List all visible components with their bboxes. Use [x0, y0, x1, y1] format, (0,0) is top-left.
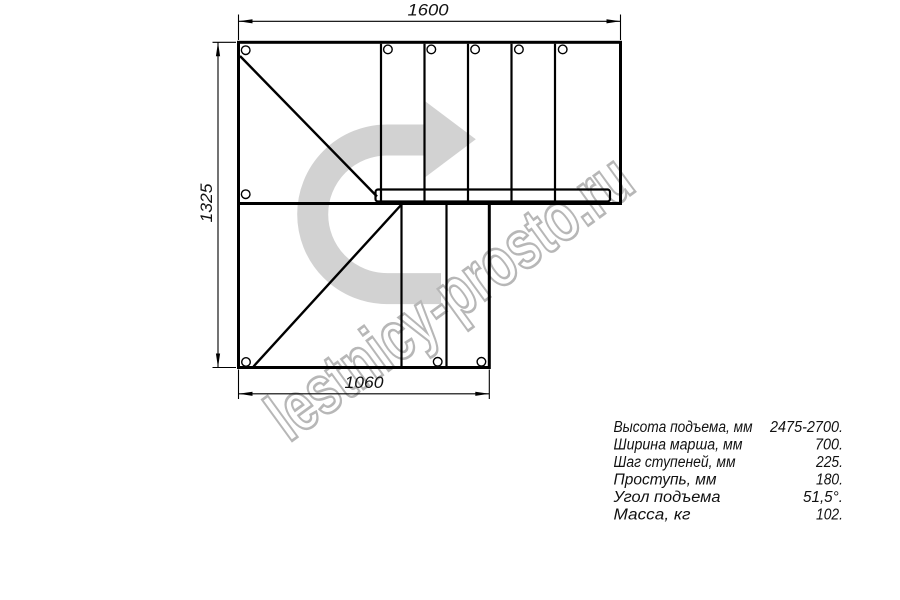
svg-text:Шаг ступеней, мм: Шаг ступеней, мм	[614, 454, 736, 471]
svg-text:Проступь, мм: Проступь, мм	[614, 472, 717, 489]
svg-text:1060: 1060	[345, 373, 385, 392]
svg-text:51,5°.: 51,5°.	[803, 489, 843, 506]
svg-text:1325: 1325	[197, 183, 216, 223]
svg-text:700.: 700.	[815, 437, 843, 454]
svg-text:Высота подъема, мм: Высота подъема, мм	[614, 419, 753, 436]
svg-text:2475-2700.: 2475-2700.	[769, 419, 843, 436]
svg-text:102.: 102.	[816, 507, 843, 524]
svg-text:Масса, кг: Масса, кг	[614, 507, 691, 524]
svg-text:Угол подъема: Угол подъема	[612, 489, 720, 506]
svg-text:Ширина марша, мм: Ширина марша, мм	[614, 437, 743, 454]
svg-text:180.: 180.	[816, 472, 843, 489]
svg-text:1600: 1600	[408, 1, 450, 20]
svg-text:225.: 225.	[815, 454, 843, 471]
